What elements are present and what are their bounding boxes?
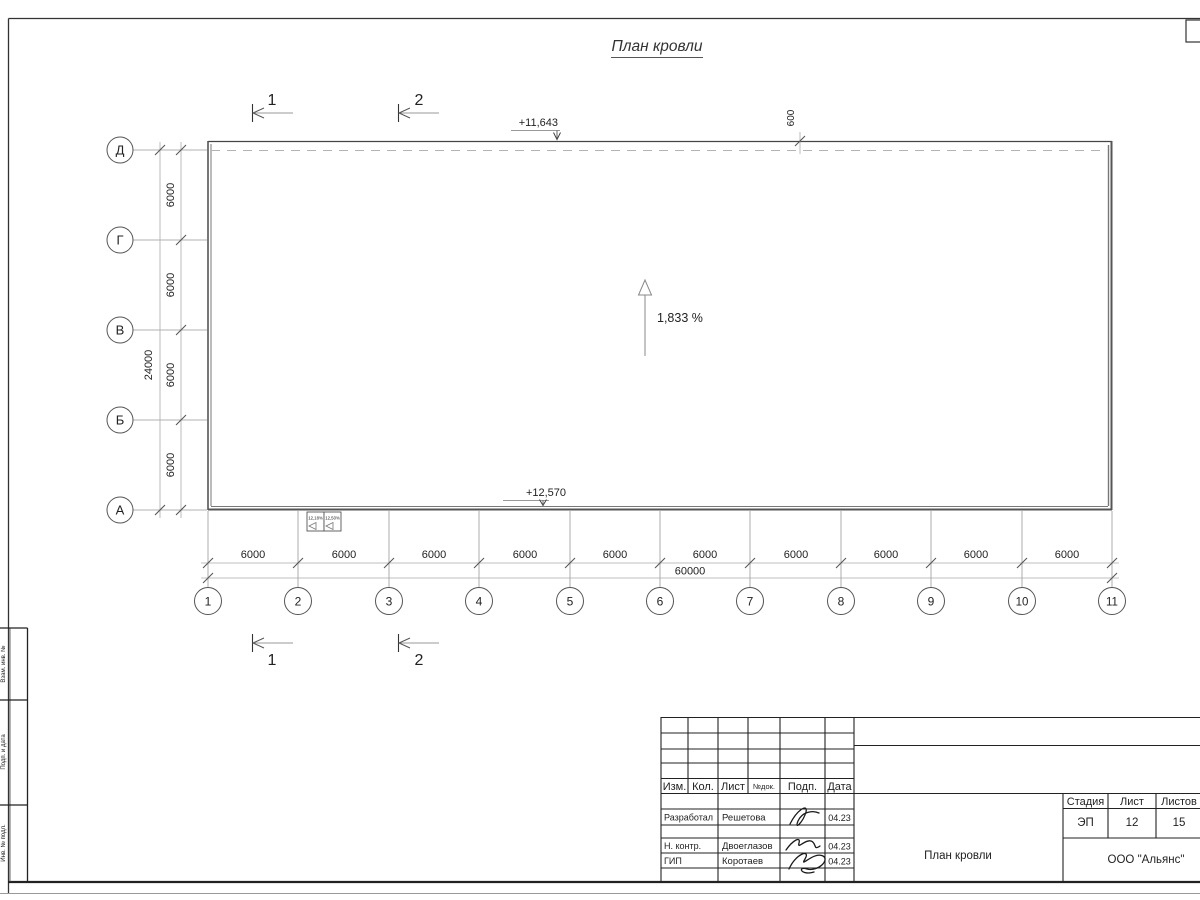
axis-label: 8 — [838, 595, 845, 609]
side-label-vzam: Взам. инв. № — [0, 645, 7, 682]
signature-ncontrol — [786, 839, 820, 850]
section-mark-2-top: 2 — [415, 92, 424, 109]
dim-label: 6000 — [332, 549, 356, 561]
section-marks: 1 2 1 2 — [253, 92, 440, 669]
tb-date-ncontrol: 04.23 — [828, 842, 851, 852]
dim-label: 6000 — [513, 549, 537, 561]
tb-name-gip: Коротаев — [722, 856, 763, 867]
slope-label: 1,833 % — [657, 311, 703, 325]
axis-label: 9 — [928, 595, 935, 609]
axis-label: 7 — [747, 595, 754, 609]
tb-stage-value: ЭП — [1077, 817, 1094, 829]
axis-label: 4 — [476, 595, 483, 609]
corner-doc-box — [1186, 20, 1200, 42]
dim-label: 6000 — [964, 549, 988, 561]
axis-label: 6 — [657, 595, 664, 609]
tb-date-developer: 04.23 — [828, 813, 851, 823]
tb-role-ncontrol: Н. контр. — [664, 841, 701, 851]
dim-label: 6000 — [874, 549, 898, 561]
dim-label: 6000 — [784, 549, 808, 561]
elevation-top-label: +11,643 — [519, 117, 558, 129]
tb-header-podp: Подп. — [788, 781, 817, 793]
page-title: План кровли — [612, 38, 703, 55]
axis-label: В — [116, 323, 125, 338]
axis-label: 10 — [1016, 597, 1029, 609]
dim-label: 6000 — [422, 549, 446, 561]
axis-label: 11 — [1106, 597, 1118, 609]
elevation-bottom-label: +12,570 — [526, 487, 566, 499]
slope-arrow: 1,833 % — [639, 280, 703, 356]
side-label-inv: Инв. № подл. — [0, 824, 7, 862]
signature-gip — [789, 854, 825, 873]
title-block: Изм. Кол. Лист №док. Подп. Дата Разработ… — [661, 717, 1200, 882]
dim-label: 6000 — [165, 183, 177, 207]
signature-developer — [790, 808, 819, 825]
dim-label: 6000 — [165, 363, 177, 387]
tb-sheet-value: 12 — [1126, 817, 1139, 829]
dim-label: 6000 — [603, 549, 627, 561]
detail-box-label: 12,50% — [325, 516, 340, 521]
tb-sheet-label: Лист — [1120, 796, 1144, 808]
dim-total-label: 60000 — [675, 566, 706, 578]
elevation-marks: +11,643 +12,570 600 — [503, 109, 805, 505]
roof-plan-outline — [208, 141, 1112, 510]
tb-header-izm: Изм. — [663, 781, 687, 793]
tb-header-ndok: №док. — [753, 782, 775, 791]
axis-label: Г — [116, 233, 123, 248]
slope-arrowhead — [639, 280, 652, 295]
tb-header-kol: Кол. — [692, 781, 714, 793]
roof-plan-drawing: Взам. инв. № Подп. и дата Инв. № подл. П… — [0, 0, 1200, 900]
tb-header-list: Лист — [721, 781, 745, 793]
section-mark-1-top: 1 — [268, 92, 277, 109]
axis-label: 1 — [205, 595, 212, 609]
dim-label: 6000 — [1055, 549, 1079, 561]
main-title: План кровли — [611, 38, 703, 58]
detail-box-label: 12,18% — [308, 516, 323, 521]
tb-date-gip: 04.23 — [828, 857, 851, 867]
axis-label: А — [116, 503, 125, 518]
axis-label: 5 — [567, 595, 574, 609]
detail-boxes: 12,18% 12,50% — [307, 512, 341, 531]
dim-label: 6000 — [693, 549, 717, 561]
section-mark-1-bottom: 1 — [268, 652, 277, 669]
tb-stage-label: Стадия — [1067, 796, 1105, 808]
axis-label: Д — [116, 143, 125, 158]
tb-name-ncontrol: Двоеглазов — [722, 841, 773, 852]
section-mark-2-bottom: 2 — [415, 652, 424, 669]
dim-label: 6000 — [241, 549, 265, 561]
tb-name-developer: Решетова — [722, 813, 766, 824]
axis-label: 3 — [386, 595, 393, 609]
parapet-offset-label: 600 — [786, 109, 797, 126]
side-label-podp: Подп. и дата — [1, 734, 7, 770]
dim-label: 6000 — [165, 273, 177, 297]
tb-header-data: Дата — [827, 781, 852, 793]
tb-sheets-value: 15 — [1173, 817, 1186, 829]
tb-doc-title: План кровли — [924, 850, 992, 862]
row-axes: Д Г В Б А — [107, 137, 207, 523]
tb-role-gip: ГИП — [664, 856, 682, 866]
left-strip: Взам. инв. № Подп. и дата Инв. № подл. — [0, 628, 28, 882]
tb-sheets-label: Листов — [1161, 796, 1197, 808]
tb-role-developer: Разработал — [664, 813, 713, 823]
axis-label: 2 — [295, 595, 302, 609]
dim-label: 6000 — [165, 453, 177, 477]
dim-total-label: 24000 — [143, 350, 155, 381]
drawing-sheet: Взам. инв. № Подп. и дата Инв. № подл. П… — [0, 0, 1200, 900]
axis-label: Б — [116, 413, 125, 428]
tb-company: ООО "Альянс" — [1108, 854, 1185, 866]
